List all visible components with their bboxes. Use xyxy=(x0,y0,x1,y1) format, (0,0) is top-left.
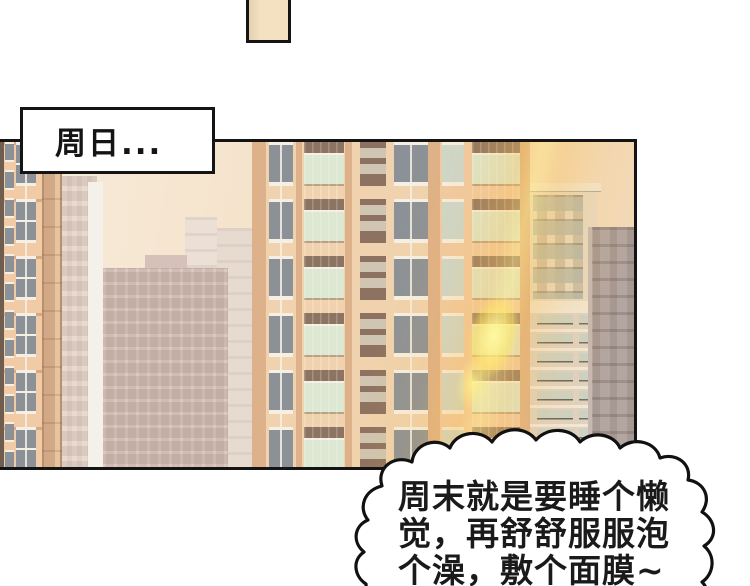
speech-bubble-text: 周末就是要睡个懒 觉，再舒舒服服泡 个澡，敷个面膜~ xyxy=(398,478,698,586)
building-foreground-right xyxy=(440,142,530,467)
caption-box: 周日... xyxy=(20,107,215,174)
window-mullion xyxy=(25,142,27,467)
previous-panel-edge xyxy=(246,0,291,43)
pilaster xyxy=(520,142,530,467)
city-panel xyxy=(0,139,637,470)
pilaster xyxy=(252,142,266,467)
building-tan-tower xyxy=(42,142,62,467)
comic-page: 周日... 周末就是要睡个懒 觉，再舒舒服服泡 个澡，敷个面膜~ xyxy=(0,0,750,586)
window-column-small xyxy=(5,142,14,467)
brown-panel-column xyxy=(360,142,386,467)
window-mullion xyxy=(410,142,412,467)
beige-upper-windows xyxy=(533,195,583,299)
caption-text: 周日... xyxy=(55,118,162,163)
bubble-line-1: 周末就是要睡个懒 xyxy=(398,478,698,515)
bubble-line-2: 觉，再舒舒服服泡 xyxy=(398,515,698,552)
building-foreground-centre xyxy=(252,142,352,467)
window-column xyxy=(442,142,464,467)
building-foreground-mid xyxy=(352,142,440,467)
pilaster xyxy=(296,142,302,467)
beige-cornice-top xyxy=(523,183,601,191)
building-haze-big xyxy=(103,268,228,470)
bubble-line-3: 个澡，敷个面膜~ xyxy=(398,552,698,586)
window-mullion xyxy=(280,142,282,467)
balcony-column xyxy=(304,142,344,467)
pilaster xyxy=(428,142,440,467)
balcony-column xyxy=(472,142,520,467)
building-foreground-left xyxy=(0,142,46,467)
building-haze-white xyxy=(88,182,103,470)
pilaster xyxy=(345,142,352,467)
